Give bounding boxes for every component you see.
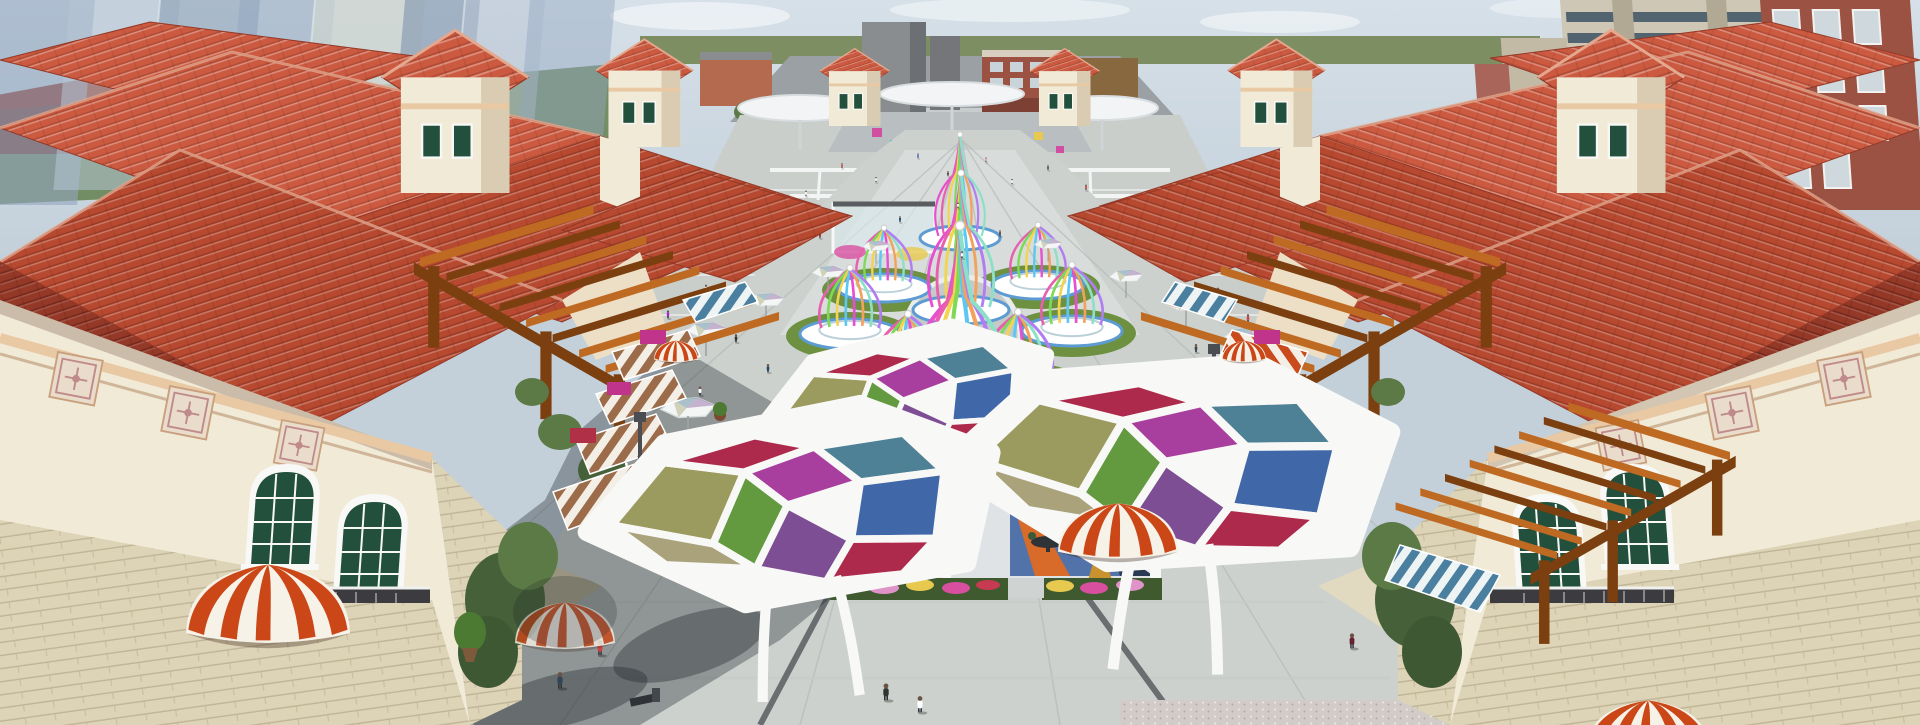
rendering-canvas	[0, 0, 1920, 725]
